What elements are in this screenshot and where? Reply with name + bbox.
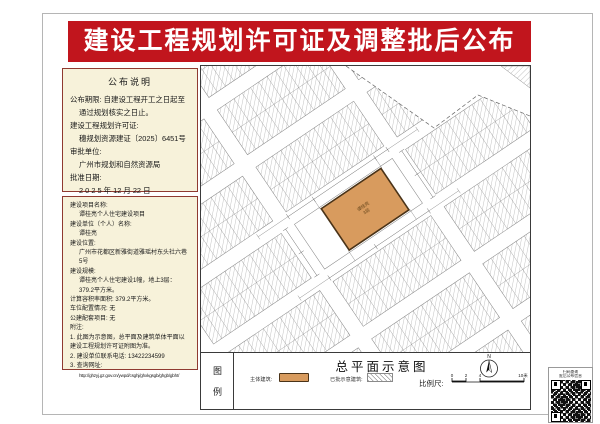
detail-line: 谭桂亮个人住宅建设1幢，地上3层：379.2平方米。 — [70, 277, 190, 296]
svg-text:2: 2 — [465, 373, 468, 378]
detail-line: 3. 查询网址: — [70, 362, 190, 371]
announcement-line: 批准日期: — [70, 171, 190, 184]
qr-finder-icon — [581, 380, 591, 390]
detail-line: 建设位置: — [70, 240, 190, 249]
site-plan-panel: 谭桂亮 3层 图 例 总平面示意图 主体建筑: 已批示意建筑: — [200, 65, 531, 410]
qr-caption: 批后公布信息 — [551, 374, 591, 379]
page-title: 建设工程规划许可证及调整批后公布 — [68, 21, 531, 62]
detail-line: 1. 此图为示意图，总平面及建筑单体平面以建设工程规划许可证附图为准。 — [70, 334, 190, 353]
query-url: http://ghzyj.gz.gov.cn/ywpd/csghj/ghxkgs… — [70, 371, 190, 380]
announcement-line: 审批单位: — [70, 145, 190, 158]
detail-line: 谭桂亮 — [70, 230, 190, 239]
svg-text:N: N — [487, 354, 491, 360]
detail-line: 建设项目名称: — [70, 202, 190, 211]
svg-text:0: 0 — [451, 373, 454, 378]
qr-code-icon — [551, 380, 591, 422]
svg-text:10米: 10米 — [518, 372, 528, 379]
announcement-line: 建设工程规划许可证: — [70, 119, 190, 132]
announcement-line: 广州市规划和自然资源局 — [70, 158, 190, 171]
detail-line: 计算容积率面积: 379.2平方米。 — [70, 296, 190, 305]
qr-finder-icon — [551, 412, 561, 422]
detail-line: 车位配置情况: 无 — [70, 305, 190, 314]
qr-finder-icon — [551, 380, 561, 390]
announcement-page: 建设工程规划许可证及调整批后公布 公布说明 公布期限: 自建设工程开工之日起至 … — [0, 0, 600, 424]
legend-title-char: 图 — [201, 364, 234, 377]
detail-line: 广州市花都区新雅街道雅瑶村东头社六巷5号 — [70, 249, 190, 268]
north-arrow-icon: N — [475, 353, 503, 381]
detail-line: 建设规模: — [70, 268, 190, 277]
announcement-line: 穗规划资源建证〔2025〕6451号 — [70, 132, 190, 145]
approved-building-swatch — [367, 373, 393, 382]
announcement-line: 通过规划核实之日止。 — [70, 106, 190, 119]
site-plan-map: 谭桂亮 3层 — [201, 66, 530, 352]
details-panel: 建设项目名称: 谭桂亮个人住宅建设项目 建设单位（个人）名称: 谭桂亮 建设位置… — [62, 196, 198, 370]
main-building-swatch — [279, 373, 309, 382]
legend-main-building-label: 主体建筑: — [250, 376, 272, 383]
detail-line: 附注: — [70, 324, 190, 333]
announcement-heading: 公布说明 — [70, 75, 190, 88]
legend-approved-building-label: 已批示意建筑: — [330, 376, 363, 383]
detail-line: 建设单位（个人）名称: — [70, 221, 190, 230]
detail-line: 公建配套项目: 无 — [70, 315, 190, 324]
site-plan-drawing: 谭桂亮 3层 — [201, 66, 530, 352]
announcement-panel: 公布说明 公布期限: 自建设工程开工之日起至 通过规划核实之日止。 建设工程规划… — [62, 68, 198, 192]
map-footer: 图 例 总平面示意图 主体建筑: 已批示意建筑: 比例尺: 0 2 4 10米 — [201, 352, 530, 409]
legend-title-box: 图 例 — [201, 353, 234, 410]
detail-line: 2. 建设单位联系电话: 13422234599 — [70, 353, 190, 362]
qr-code-block: 扫码查询 批后公布信息 — [548, 367, 593, 423]
scale-label: 比例尺: — [419, 378, 444, 389]
announcement-line: 公布期限: 自建设工程开工之日起至 — [70, 93, 190, 106]
legend-title-char: 例 — [201, 385, 234, 398]
detail-line: 谭桂亮个人住宅建设项目 — [70, 211, 190, 220]
